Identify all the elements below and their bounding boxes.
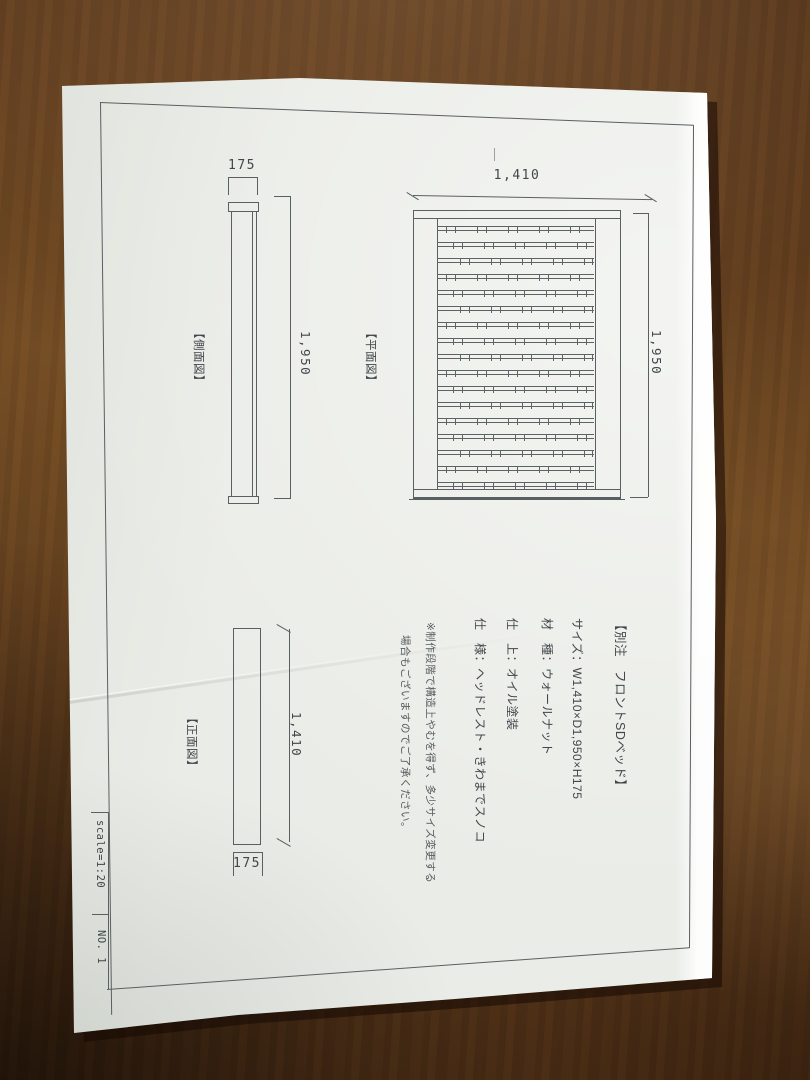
slat-joint-tick [453,242,454,249]
slat-joint-tick [460,258,461,265]
slat-joint-tick [462,434,463,441]
note-line-1: ※制作段階で構造上やむを得ず、多少サイズ変更する [423,622,438,883]
slat-joint-tick [546,242,547,249]
slat-joint-tick [446,274,447,281]
slat-joint-tick [586,338,587,345]
slat-joint-tick [469,402,470,409]
slat-joint-tick [531,402,532,409]
plan-slat [438,226,594,231]
slat-joint-tick [460,402,461,409]
slat-joint-tick [562,450,563,457]
note-line-2: 場合もございますのでご了承ください。 [398,635,413,833]
slat-joint-tick [517,322,518,329]
slat-joint-tick [484,338,485,345]
slat-joint-tick [555,338,556,345]
plan-slat [438,274,594,279]
plan-slat [438,290,594,295]
slat-joint-tick [500,354,501,361]
frame-top-line [100,102,694,126]
slat-joint-tick [460,450,461,457]
slat-joint-tick [548,418,549,425]
slat-joint-tick [486,274,487,281]
product-title: 【別注 フロントSDベッド】 [612,618,631,792]
slat-joint-tick [484,482,485,489]
slat-joint-tick [548,466,549,473]
slat-joint-tick [460,306,461,313]
plan-slat [438,386,594,391]
slat-joint-tick [493,290,494,297]
plan-view-label: 【平面図】 [363,327,379,387]
plan-slat [438,306,594,311]
frame-bottom-line [107,947,690,990]
slat-joint-tick [579,466,580,473]
slat-joint-tick [469,450,470,457]
plan-slat [438,402,594,407]
slat-joint-tick [553,354,554,361]
title-strip-top [91,812,108,813]
plan-foot-edge [409,499,625,500]
plan-headboard [413,210,621,219]
slat-joint-tick [592,354,593,361]
slat-joint-tick [453,386,454,393]
slat-joint-tick [493,386,494,393]
slat-joint-tick [455,226,456,233]
slat-joint-tick [517,466,518,473]
slat-joint-tick [522,450,523,457]
frame-right-line [689,125,694,948]
slat-joint-tick [555,434,556,441]
spec-finish: 仕 上：オイル塗装 [504,618,521,731]
slat-joint-tick [515,482,516,489]
slat-joint-tick [477,466,478,473]
slat-joint-tick [453,434,454,441]
title-strip-divider [92,914,108,915]
slat-joint-tick [539,226,540,233]
slat-joint-tick [539,418,540,425]
slat-joint-tick [555,290,556,297]
slat-joint-tick [570,418,571,425]
slat-joint-tick [508,370,509,377]
slat-joint-tick [515,290,516,297]
slat-joint-tick [548,370,549,377]
slat-joint-tick [491,354,492,361]
slat-joint-tick [577,482,578,489]
slat-joint-tick [522,306,523,313]
slat-joint-tick [548,322,549,329]
slat-joint-tick [469,354,470,361]
plan-slats [438,226,594,492]
slat-joint-tick [570,322,571,329]
slat-joint-tick [570,274,571,281]
slat-joint-tick [570,466,571,473]
front-height-dim-line [233,852,263,853]
slat-joint-tick [586,386,587,393]
title-strip-line [108,812,109,989]
plan-rail-right [595,218,596,490]
plan-slat [438,338,594,343]
slat-joint-tick [446,370,447,377]
slat-joint-tick [522,354,523,361]
side-view-rail-line [252,212,253,496]
slat-joint-tick [524,290,525,297]
slat-joint-tick [477,274,478,281]
slat-joint-tick [584,306,585,313]
slat-joint-tick [524,434,525,441]
slat-joint-tick [562,258,563,265]
slat-joint-tick [484,242,485,249]
slat-joint-tick [486,370,487,377]
slat-joint-tick [546,386,547,393]
slat-joint-tick [517,418,518,425]
slat-joint-tick [446,322,447,329]
slat-joint-tick [453,482,454,489]
slat-joint-tick [584,354,585,361]
slat-joint-tick [531,306,532,313]
slat-joint-tick [517,226,518,233]
slat-joint-tick [546,290,547,297]
slat-joint-tick [455,418,456,425]
sheet-scale-label: scale=1:20 [94,820,106,888]
slat-joint-tick [455,322,456,329]
slat-joint-tick [592,258,593,265]
slat-joint-tick [586,434,587,441]
slat-joint-tick [553,450,554,457]
slat-joint-tick [477,226,478,233]
slat-joint-tick [446,466,447,473]
slat-joint-tick [592,306,593,313]
slat-joint-tick [486,418,487,425]
slat-joint-tick [548,226,549,233]
slat-joint-tick [577,386,578,393]
plan-slat [438,242,594,247]
slat-joint-tick [515,242,516,249]
slat-joint-tick [484,434,485,441]
slat-joint-tick [455,466,456,473]
plan-slat [438,322,594,327]
plan-slat [438,450,594,455]
side-length-dim-line [290,196,291,499]
slat-joint-tick [500,306,501,313]
slat-joint-tick [577,434,578,441]
plan-width-dim-text: 1,410 [487,168,547,183]
slat-joint-tick [524,242,525,249]
side-view-body [231,211,257,497]
slat-joint-tick [508,226,509,233]
slat-joint-tick [493,434,494,441]
front-height-dim-text: 175 [227,856,267,871]
slat-joint-tick [484,290,485,297]
slat-joint-tick [531,258,532,265]
slat-joint-tick [546,434,547,441]
slat-joint-tick [553,258,554,265]
slat-joint-tick [493,338,494,345]
slat-joint-tick [539,274,540,281]
slat-joint-tick [477,370,478,377]
slat-joint-tick [462,242,463,249]
side-view-foot [228,496,259,504]
slat-joint-tick [491,402,492,409]
slat-joint-tick [548,274,549,281]
slat-joint-tick [453,290,454,297]
plan-slat [438,370,594,375]
plan-width-dim-line [413,195,652,200]
slat-joint-tick [592,450,593,457]
slat-joint-tick [491,306,492,313]
slat-joint-tick [577,290,578,297]
sheet-number-label: NO. 1 [95,930,107,964]
side-view-label: 【側面図】 [191,327,207,387]
spec-features: 仕 様：ヘッドレスト・きわまでスノコ [472,618,489,843]
slat-joint-tick [553,402,554,409]
slat-joint-tick [592,402,593,409]
plan-slat [438,258,594,263]
slat-joint-tick [553,306,554,313]
front-view-label: 【正面図】 [184,712,200,772]
plan-slat [438,466,594,471]
slat-joint-tick [486,322,487,329]
slat-joint-tick [577,242,578,249]
slat-joint-tick [508,274,509,281]
slat-joint-tick [455,274,456,281]
slat-joint-tick [462,290,463,297]
slat-joint-tick [524,386,525,393]
slat-joint-tick [462,386,463,393]
plan-slat [438,482,594,487]
plan-slat [438,354,594,359]
slat-joint-tick [491,258,492,265]
slat-joint-tick [446,226,447,233]
slat-joint-tick [486,226,487,233]
slat-joint-tick [584,450,585,457]
slat-joint-tick [469,258,470,265]
slat-joint-tick [570,226,571,233]
slat-joint-tick [484,386,485,393]
slat-joint-tick [570,370,571,377]
plan-length-tick-top [633,213,648,214]
slat-joint-tick [515,338,516,345]
side-height-ext-left [228,177,229,195]
slat-joint-tick [539,466,540,473]
slat-joint-tick [579,370,580,377]
spec-size: サイズ：W1,410×D1,950×H175 [569,618,586,799]
slat-joint-tick [486,466,487,473]
slat-joint-tick [546,482,547,489]
side-height-ext-right [257,177,258,195]
slat-joint-tick [522,258,523,265]
slat-joint-tick [524,338,525,345]
slat-joint-tick [517,274,518,281]
slat-joint-tick [539,370,540,377]
slat-joint-tick [491,450,492,457]
slat-joint-tick [500,402,501,409]
side-length-tick-top [274,196,290,197]
side-height-dim-text: 175 [222,158,262,173]
plan-width-tick-left [406,192,418,200]
side-length-dim-text: 1,950 [298,331,313,376]
slat-joint-tick [579,322,580,329]
slat-joint-tick [508,418,509,425]
slat-joint-tick [579,226,580,233]
front-width-dim-text: 1,410 [289,712,304,757]
side-length-tick-bottom [274,498,290,499]
slat-joint-tick [562,402,563,409]
spec-material: 材 種：ウォールナット [539,618,556,756]
slat-joint-tick [524,482,525,489]
wood-table: { "drawing": { "product_title": "【別注 フロン… [0,0,810,1080]
slat-joint-tick [469,306,470,313]
slat-joint-tick [500,258,501,265]
slat-joint-tick [508,322,509,329]
slat-joint-tick [555,482,556,489]
slat-joint-tick [515,386,516,393]
front-view-body [233,628,261,845]
slat-joint-tick [562,306,563,313]
slat-joint-tick [493,242,494,249]
slat-joint-tick [586,482,587,489]
slat-joint-tick [531,354,532,361]
plan-length-tick-bottom [630,497,648,498]
paper: scale=1:20 NO. 1 【側面図】 175 1,950 【平面図】 1… [0,0,810,1080]
slat-joint-tick [546,338,547,345]
slat-joint-tick [493,482,494,489]
slat-joint-tick [522,402,523,409]
slat-joint-tick [586,290,587,297]
slat-joint-tick [462,482,463,489]
plan-slat [438,418,594,423]
slat-joint-tick [539,322,540,329]
slat-joint-tick [462,338,463,345]
slat-joint-tick [555,386,556,393]
slat-joint-tick [577,338,578,345]
frame-center-tick [494,148,495,161]
slat-joint-tick [579,274,580,281]
slat-joint-tick [455,370,456,377]
slat-joint-tick [446,418,447,425]
slat-joint-tick [531,450,532,457]
slat-joint-tick [584,402,585,409]
plan-slat [438,434,594,439]
slat-joint-tick [517,370,518,377]
slat-joint-tick [453,338,454,345]
side-height-dim-line [228,177,258,178]
slat-joint-tick [584,258,585,265]
slat-joint-tick [460,354,461,361]
slat-joint-tick [515,434,516,441]
slat-joint-tick [477,322,478,329]
slat-joint-tick [579,418,580,425]
slat-joint-tick [508,466,509,473]
slat-joint-tick [477,418,478,425]
plan-length-dim-text: 1,950 [649,330,664,375]
slat-joint-tick [500,450,501,457]
slat-joint-tick [586,242,587,249]
slat-joint-tick [555,242,556,249]
slat-joint-tick [562,354,563,361]
